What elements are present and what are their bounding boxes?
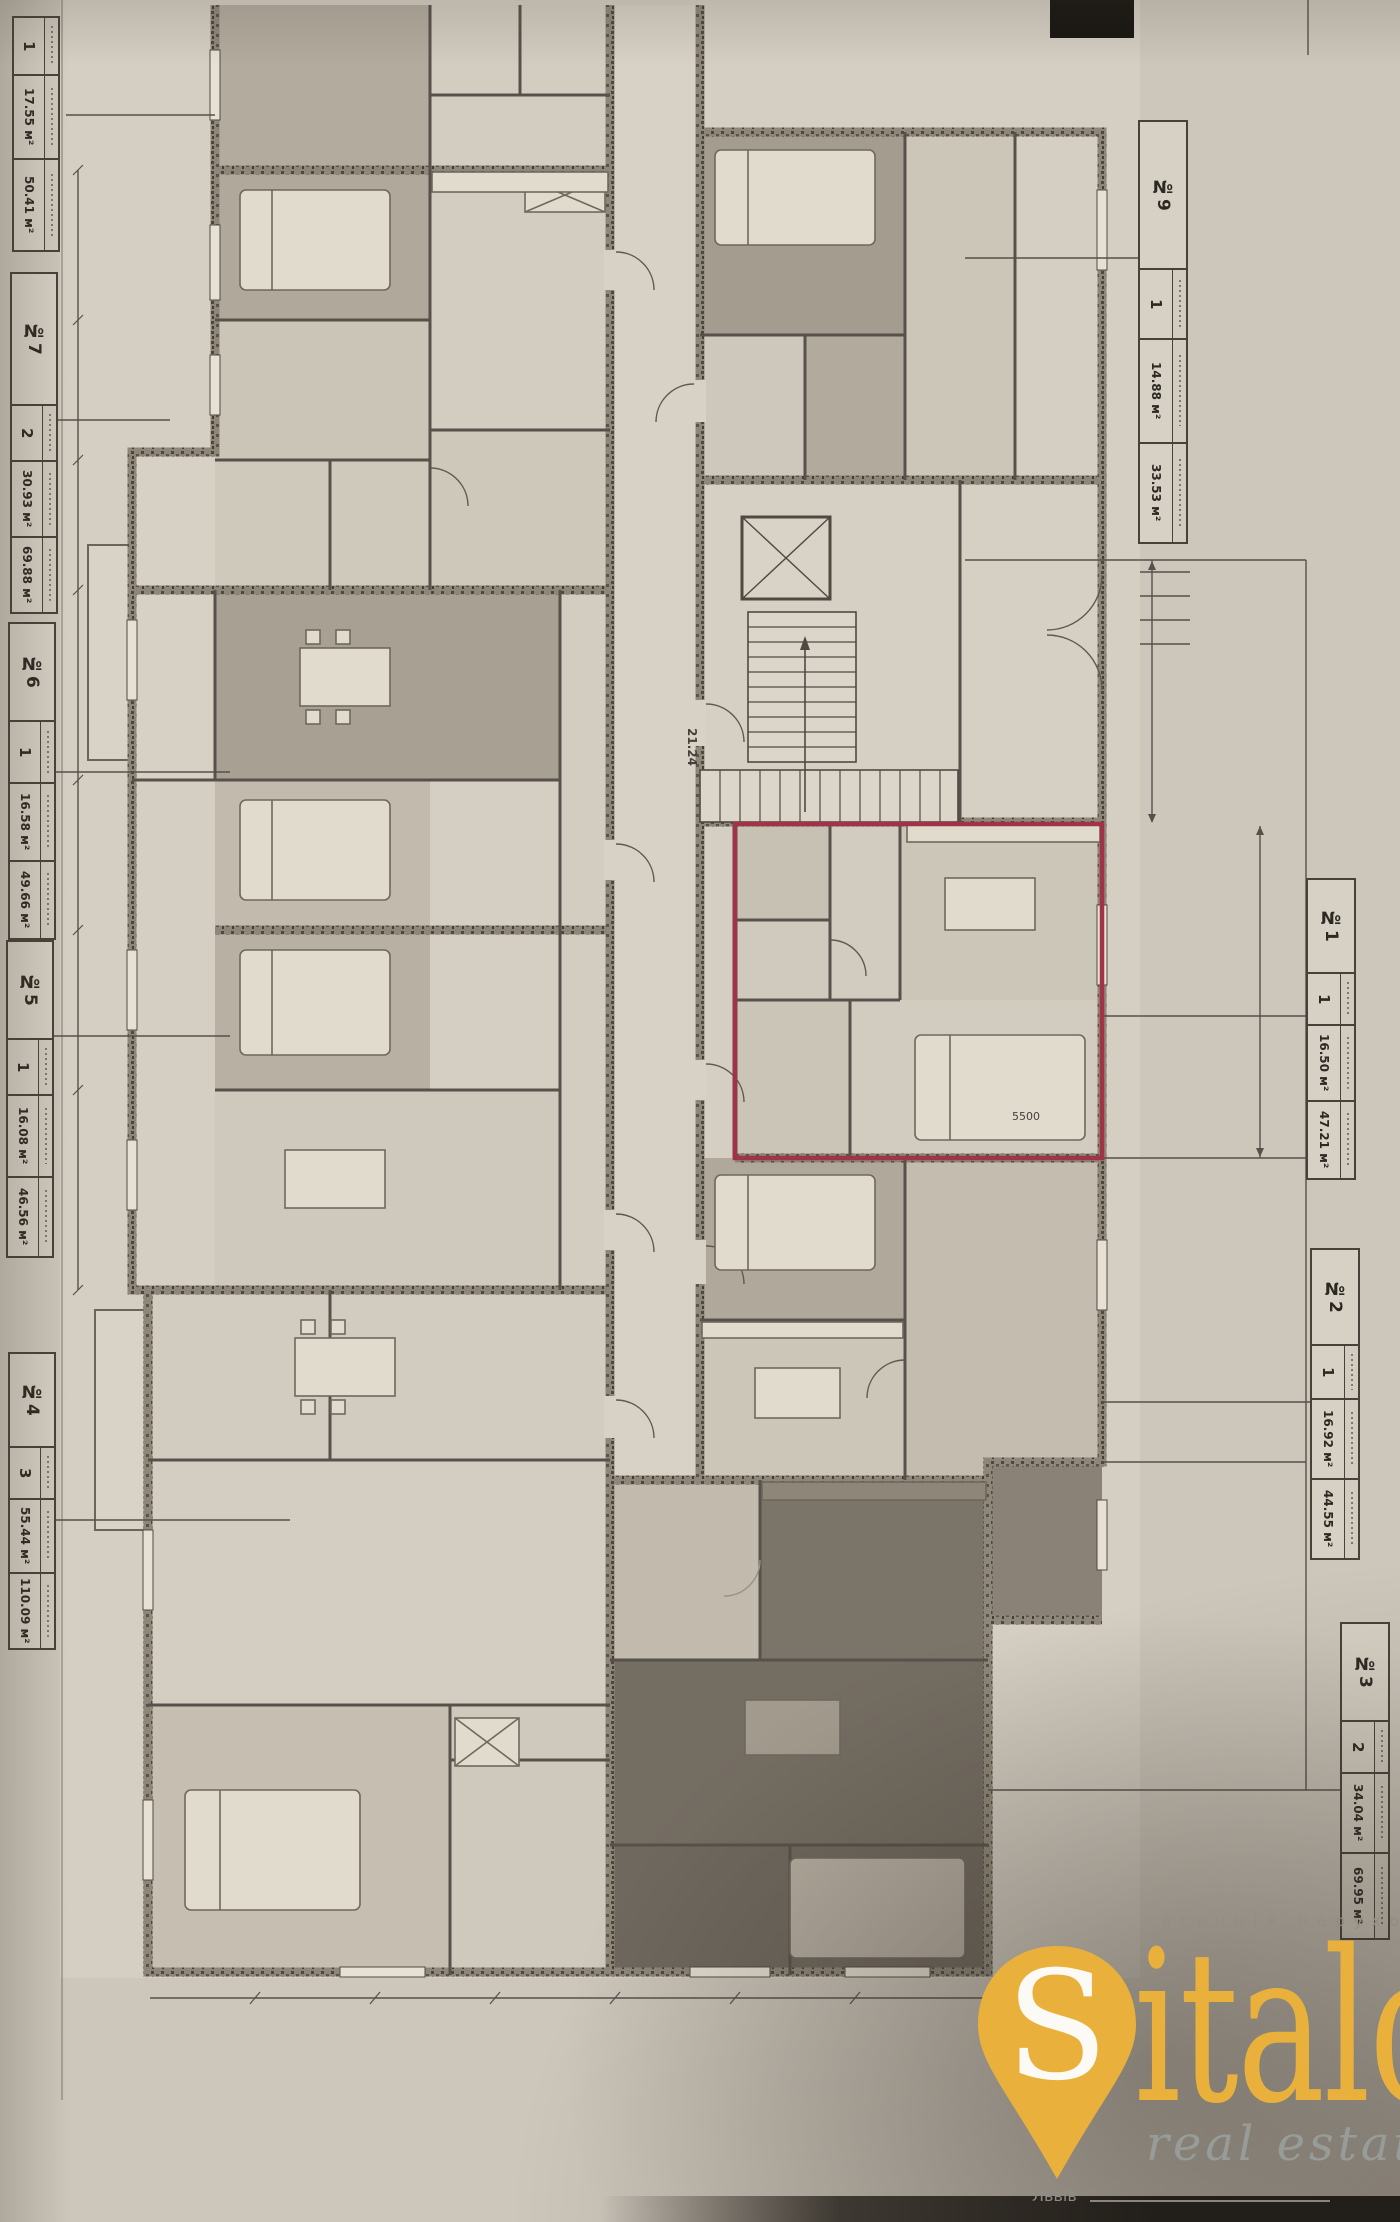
room-count: 1 xyxy=(1319,1367,1337,1377)
label-side-cell xyxy=(40,722,54,782)
room-count: 1 xyxy=(16,747,34,757)
label-side-cell xyxy=(1340,1102,1354,1178)
apartment-label-5: №5 1 16.08 м² 46.56 м² xyxy=(6,940,54,1258)
apartment-number: №2 xyxy=(1325,1280,1345,1314)
total-area: 33.53 м² xyxy=(1149,464,1163,521)
apartment-label-3: №3 2 34.04 м² 69.95 м² xyxy=(1340,1622,1390,1940)
label-side-cell xyxy=(44,160,58,250)
top-right-black-block xyxy=(1050,0,1134,38)
room-area: 34.04 м² xyxy=(1351,1784,1365,1841)
label-side-cell xyxy=(38,1178,52,1256)
label-side-cell xyxy=(40,1448,54,1498)
apartment-label-2: №2 1 16.92 м² 44.55 м² xyxy=(1310,1248,1360,1560)
label-side-cell xyxy=(44,18,58,74)
room-count: 3 xyxy=(16,1468,34,1478)
apartment-label-1: №1 1 16.50 м² 47.21 м² xyxy=(1306,878,1356,1180)
floor-plan-photo: 21.24 5500 1 17.55 м² 50.41 м² №7 2 30.9… xyxy=(0,0,1400,2222)
floor-plan-drawing: 21.24 5500 xyxy=(0,0,1400,2222)
label-side-cell xyxy=(1172,444,1186,542)
room-area: 16.50 м² xyxy=(1317,1034,1331,1091)
label-side-cell xyxy=(40,1574,54,1648)
room-area: 16.08 м² xyxy=(16,1107,30,1164)
map-pin-icon: S xyxy=(972,1940,1142,2185)
room-area: 30.93 м² xyxy=(20,470,34,527)
label-side-cell xyxy=(40,1500,54,1572)
total-area: 46.56 м² xyxy=(16,1188,30,1245)
logo-rule xyxy=(1090,2200,1330,2202)
room-count: 2 xyxy=(18,428,36,438)
room-area: 14.88 м² xyxy=(1149,362,1163,419)
room-count: 1 xyxy=(20,41,38,51)
total-area: 47.21 м² xyxy=(1317,1111,1331,1168)
apartment-number: №5 xyxy=(20,973,40,1007)
label-side-cell xyxy=(1344,1346,1358,1398)
apartment-number: №6 xyxy=(22,655,42,689)
label-side-cell xyxy=(42,538,56,612)
logo-city: Львів xyxy=(1032,2186,1077,2205)
total-area: 50.41 м² xyxy=(22,176,36,233)
label-side-cell xyxy=(42,462,56,536)
label-side-cell xyxy=(1344,1400,1358,1478)
dimension-label: 5500 xyxy=(1012,1110,1040,1123)
label-side-cell xyxy=(1172,340,1186,442)
apartment-number: №1 xyxy=(1321,909,1341,943)
room-area: 16.58 м² xyxy=(18,793,32,850)
room-count: 1 xyxy=(1315,994,1333,1004)
label-side-cell xyxy=(1172,270,1186,338)
room-count: 1 xyxy=(1147,299,1165,309)
apartment-label-7: №7 2 30.93 м² 69.88 м² xyxy=(10,272,58,614)
logo-initial: S xyxy=(1006,1940,1109,2114)
apartment-label-top-partial: 1 17.55 м² 50.41 м² xyxy=(12,16,60,252)
total-area: 110.09 м² xyxy=(18,1578,32,1644)
logo-tagline-bottom: real estate xyxy=(1146,2116,1400,2172)
label-side-cell xyxy=(42,406,56,460)
label-side-cell xyxy=(1374,1722,1388,1772)
label-side-cell xyxy=(1340,974,1354,1024)
apartment-number: №3 xyxy=(1355,1655,1375,1689)
label-side-cell xyxy=(38,1096,52,1176)
total-area: 44.55 м² xyxy=(1321,1490,1335,1547)
apartment-number: №9 xyxy=(1153,178,1173,212)
room-count: 2 xyxy=(1349,1742,1367,1752)
apartment-label-6: №6 1 16.58 м² 49.66 м² xyxy=(8,622,56,940)
total-area: 69.88 м² xyxy=(20,546,34,603)
label-side-cell xyxy=(38,1040,52,1094)
corridor-area-label: 21.24 xyxy=(685,728,699,766)
total-area: 49.66 м² xyxy=(18,871,32,928)
apartment-number: №7 xyxy=(24,322,44,356)
room-count: 1 xyxy=(14,1062,32,1072)
apartment-number: №4 xyxy=(22,1383,42,1417)
room-area: 55.44 м² xyxy=(18,1507,32,1564)
label-side-cell xyxy=(1344,1480,1358,1558)
logo-wordmark: italo xyxy=(1134,1944,1400,2112)
label-side-cell xyxy=(44,76,58,158)
label-side-cell xyxy=(1340,1026,1354,1100)
label-side-cell xyxy=(40,784,54,860)
label-side-cell xyxy=(40,862,54,938)
apartment-label-4: №4 3 55.44 м² 110.09 м² xyxy=(8,1352,56,1650)
room-area: 17.55 м² xyxy=(22,88,36,145)
apartment-label-9: №9 1 14.88 м² 33.53 м² xyxy=(1138,120,1188,544)
room-area: 16.92 м² xyxy=(1321,1410,1335,1467)
label-side-cell xyxy=(1374,1774,1388,1852)
